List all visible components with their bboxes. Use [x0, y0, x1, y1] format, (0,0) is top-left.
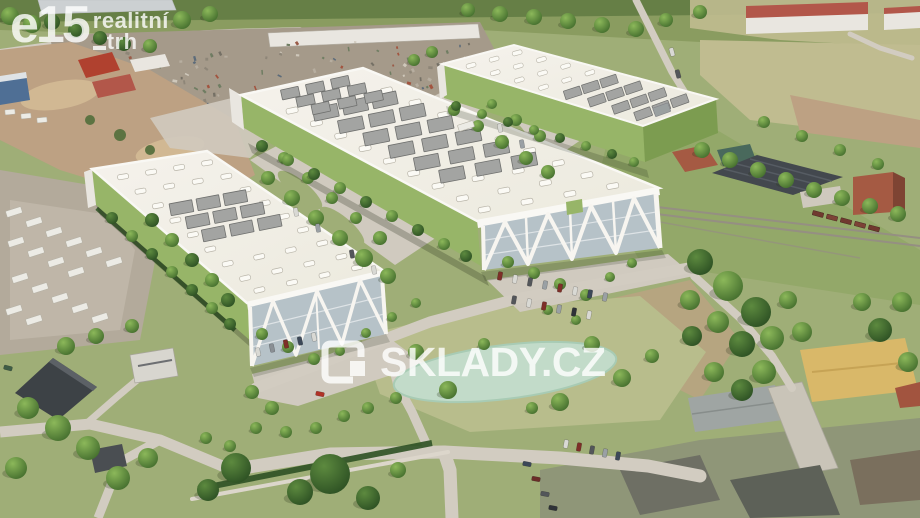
scrap-debris: [224, 56, 227, 58]
scrap-debris: [205, 58, 208, 61]
scrap-debris: [181, 77, 183, 80]
e15-brand-watermark: e15 realitní trh: [10, 2, 169, 53]
sklady-watermark: SKLADY.CZ: [320, 339, 606, 386]
scrap-debris: [330, 59, 333, 62]
e15-logo-subtitle: realitní trh: [93, 11, 169, 53]
underscore-mark: [93, 46, 106, 50]
warehouse-box-icon: [320, 339, 367, 386]
scrap-debris: [428, 66, 433, 69]
sklady-logo-text: SKLADY.CZ: [380, 342, 606, 383]
e15-logo-text: e15: [10, 2, 88, 49]
aerial-render-photo: e15 realitní trh SKLADY.CZ: [0, 0, 920, 518]
e15-sub-bottom-row: trh: [93, 32, 169, 53]
scrap-debris: [296, 54, 299, 56]
truck: [37, 117, 47, 123]
aerial-scene: [0, 0, 920, 518]
truck: [5, 109, 15, 115]
scrap-debris: [459, 45, 461, 48]
scrap-debris: [179, 60, 182, 63]
e15-sub-bottom: trh: [107, 32, 138, 53]
scrap-debris: [354, 41, 357, 43]
truck: [21, 113, 31, 119]
